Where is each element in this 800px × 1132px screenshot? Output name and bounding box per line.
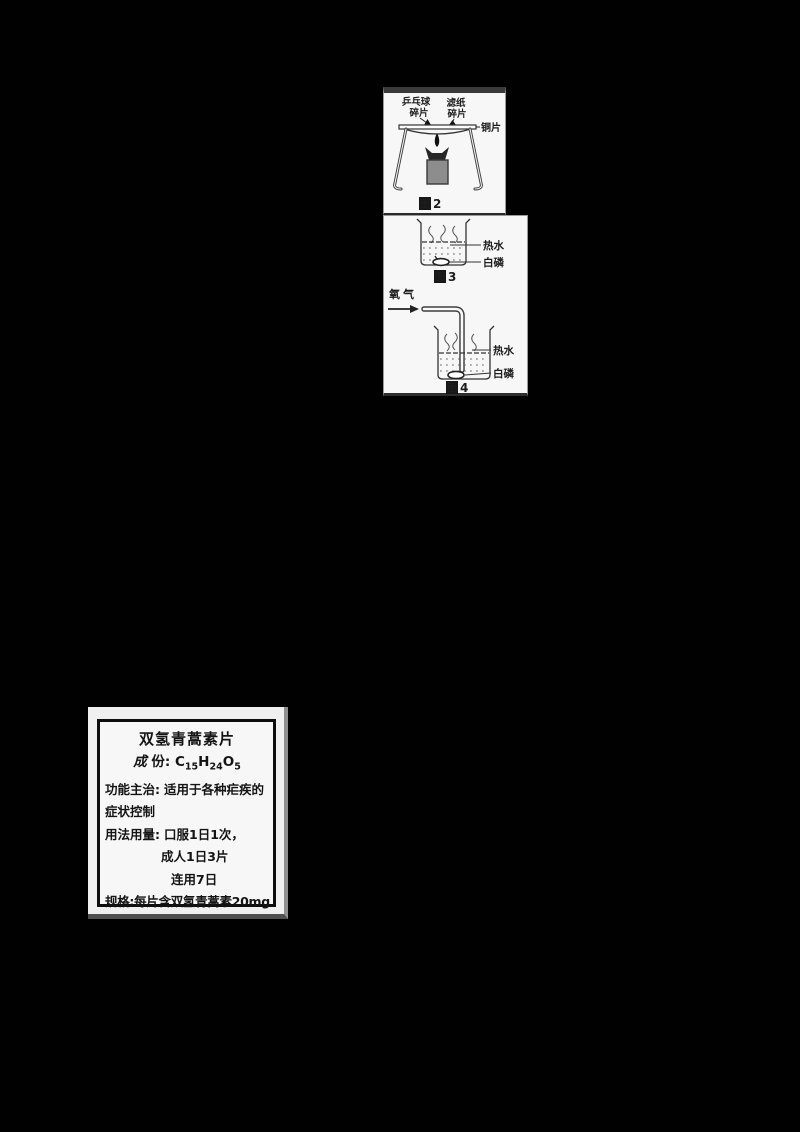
composition-label: 份: xyxy=(151,754,170,770)
oxygen-label: 氧气 xyxy=(388,287,417,301)
figure4-caption: 图 4 xyxy=(446,381,468,395)
figure3-caption-number: 3 xyxy=(448,270,456,284)
figure4-beaker-oxygen-diagram-svg: 氧气 热水 白磷 图 4 xyxy=(384,284,527,395)
medicine-title: 双氢青蒿素片 xyxy=(105,727,269,751)
white-phosphorus-blob xyxy=(433,259,449,266)
indication-line2: 症状控制 xyxy=(105,801,269,824)
copper-sheet-label: 铜片 xyxy=(481,121,501,134)
figure2-caption-prefix: 图 xyxy=(420,199,430,211)
spec-amount: 20mg xyxy=(232,894,270,909)
alcohol-lamp-top xyxy=(425,147,449,160)
spec-label: 规格: xyxy=(105,894,134,909)
usage-label: 用法用量: xyxy=(105,827,160,842)
composition-line: 成 份: C15H24O5 xyxy=(105,751,269,779)
figure3-caption-prefix: 图 xyxy=(435,272,445,284)
usage-text2: 成人1日3片 xyxy=(161,849,228,864)
usage-text3: 连用7日 xyxy=(171,872,217,887)
phosphorus-tick xyxy=(435,256,437,259)
oxygen-arrow-icon xyxy=(410,305,419,313)
flame-icon xyxy=(435,133,440,147)
usage-text1: 口服1日1次， xyxy=(164,827,244,842)
copper-dish-arc xyxy=(404,129,471,134)
figure4-caption-prefix: 图 xyxy=(447,383,457,395)
steam-lines xyxy=(429,225,458,243)
indication-label: 功能主治: xyxy=(105,782,160,797)
figure3-beaker-diagram-svg: 热水 白磷 图 3 xyxy=(384,216,527,284)
usage-line3: 连用7日 xyxy=(105,869,269,892)
page-background: 乒乓球 碎片 滤纸 碎片 铜片 图 xyxy=(0,0,800,1132)
indication-line1: 功能主治:适用于各种疟疾的 xyxy=(105,779,269,802)
indication-text: 适用于各种疟疾的 xyxy=(164,782,264,797)
pingpong-label-line1: 乒乓球 xyxy=(402,96,431,108)
figure2-tripod-diagram-svg: 乒乓球 碎片 滤纸 碎片 铜片 图 xyxy=(384,93,505,213)
figure2-caption-number: 2 xyxy=(433,197,441,211)
figure2-panel: 乒乓球 碎片 滤纸 碎片 铜片 图 xyxy=(383,87,506,215)
chemical-formula: C15H24O5 xyxy=(175,754,241,770)
phosphorus-label-line xyxy=(465,373,491,375)
filter-paper-label-line2: 碎片 xyxy=(447,108,466,120)
indication-text2: 症状控制 xyxy=(105,804,155,819)
white-phosphorus-blob xyxy=(448,371,464,378)
figure2-caption: 图 2 xyxy=(419,197,441,211)
filter-paper-label-line1: 滤纸 xyxy=(446,97,466,109)
alcohol-lamp-body xyxy=(427,160,448,184)
spec-line: 规格:每片含双氢青蒿素20mg xyxy=(105,891,269,914)
figure3-4-panel: 热水 白磷 图 3 氧气 热水 白磷 xyxy=(383,215,528,396)
hot-water-label: 热水 xyxy=(483,239,504,252)
spec-text: 每片含双氢青蒿素 xyxy=(134,894,232,909)
medicine-label-card: 双氢青蒿素片 成 份: C15H24O5 功能主治:适用于各种疟疾的 症状控制 … xyxy=(88,707,288,919)
copper-plate xyxy=(399,125,476,129)
hot-water-label: 热水 xyxy=(493,344,514,357)
figure4-caption-number: 4 xyxy=(460,381,468,395)
figure3-caption: 图 3 xyxy=(434,270,456,284)
filter-paper-pile-icon xyxy=(449,120,456,125)
composition-label-script: 成 xyxy=(133,754,147,770)
pingpong-label-line2: 碎片 xyxy=(409,107,428,119)
white-phosphorus-label: 白磷 xyxy=(493,367,514,380)
usage-line1: 用法用量:口服1日1次， xyxy=(105,824,269,847)
white-phosphorus-label: 白磷 xyxy=(483,256,504,269)
medicine-label-border-box: 双氢青蒿素片 成 份: C15H24O5 功能主治:适用于各种疟疾的 症状控制 … xyxy=(97,719,276,907)
usage-line2: 成人1日3片 xyxy=(105,846,269,869)
